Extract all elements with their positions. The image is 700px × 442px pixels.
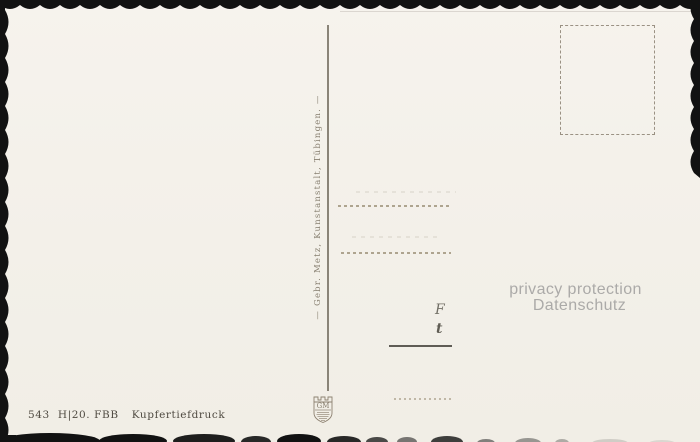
scan-artifact-streak <box>340 11 700 12</box>
imprint-number: 543 <box>28 409 50 421</box>
imprint-series: H|20. FBB <box>58 409 119 421</box>
stamp-box <box>560 25 655 135</box>
postcard-back: — Gebr. Metz, Kunstanstalt, Tübingen. — … <box>0 0 700 442</box>
left-deckle-edge <box>0 0 9 442</box>
imprint-process: Kupfertiefdruck <box>132 409 226 421</box>
printer-imprint: 543 H|20. FBB Kupfertiefdruck <box>28 409 225 423</box>
handwriting-remnant-1: F <box>435 303 445 317</box>
privacy-watermark: privacy protection Datenschutz <box>458 282 693 314</box>
publisher-emblem-icon: GM <box>312 395 334 424</box>
privacy-watermark-line1: privacy protection <box>458 282 693 298</box>
address-dotted-line <box>394 398 453 400</box>
handwriting-remnant-2: t <box>436 322 442 336</box>
privacy-watermark-line2: Datenschutz <box>458 298 693 314</box>
address-dashed-line-2 <box>341 252 451 254</box>
svg-text:GM: GM <box>317 402 330 410</box>
right-deckle-edge <box>691 0 700 178</box>
address-solid-line <box>389 345 452 347</box>
bottom-deckle-edge <box>0 433 676 442</box>
publisher-text: — Gebr. Metz, Kunstanstalt, Tübingen. — <box>313 0 325 417</box>
erased-line-1 <box>356 191 456 193</box>
address-dashed-line-1 <box>338 205 451 207</box>
erased-line-2 <box>352 236 442 238</box>
center-divider-line <box>327 25 329 391</box>
top-deckle-edge <box>0 0 700 9</box>
